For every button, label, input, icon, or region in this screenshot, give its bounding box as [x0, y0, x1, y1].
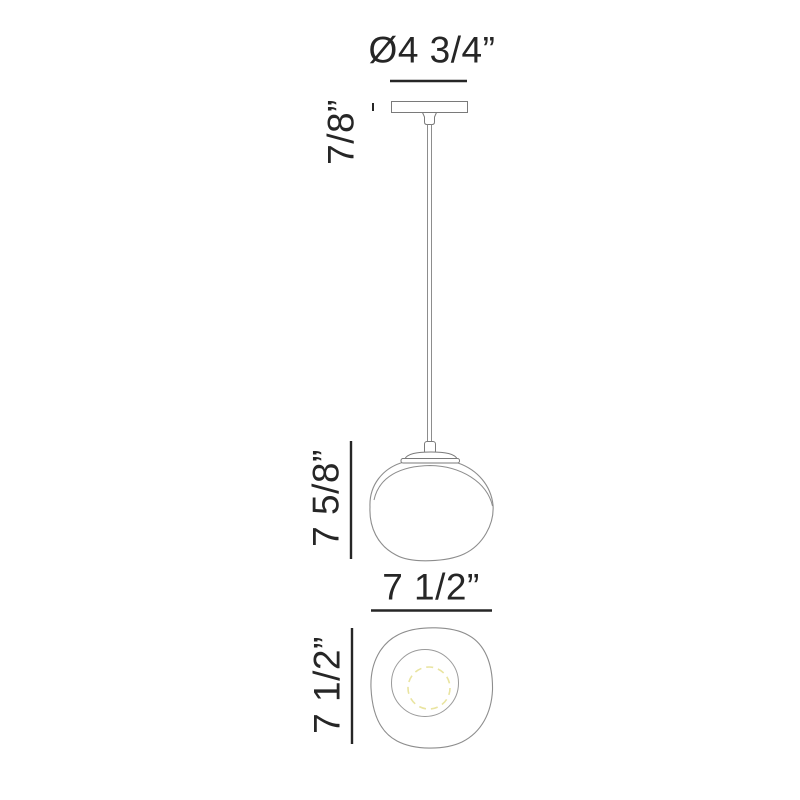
- bottom-view-diameter-label: 7 1/2”: [309, 636, 346, 734]
- globe-width-label: 7 1/2”: [382, 569, 480, 606]
- dimension-drawing: Ø4 3/4” 7/8” 7 5/8” 7 1/2” 7 1/2”: [0, 0, 800, 800]
- globe-outline: [370, 460, 493, 561]
- canopy-height-label: 7/8”: [323, 99, 360, 165]
- canopy-diameter-label: Ø4 3/4”: [369, 32, 496, 69]
- cap-band: [401, 459, 460, 464]
- pendant-line-drawing: [0, 0, 800, 800]
- canopy-stem: [423, 113, 437, 125]
- globe-height-label: 7 5/8”: [308, 449, 345, 547]
- canopy: [392, 102, 468, 113]
- bottom-view-outline: [371, 628, 493, 748]
